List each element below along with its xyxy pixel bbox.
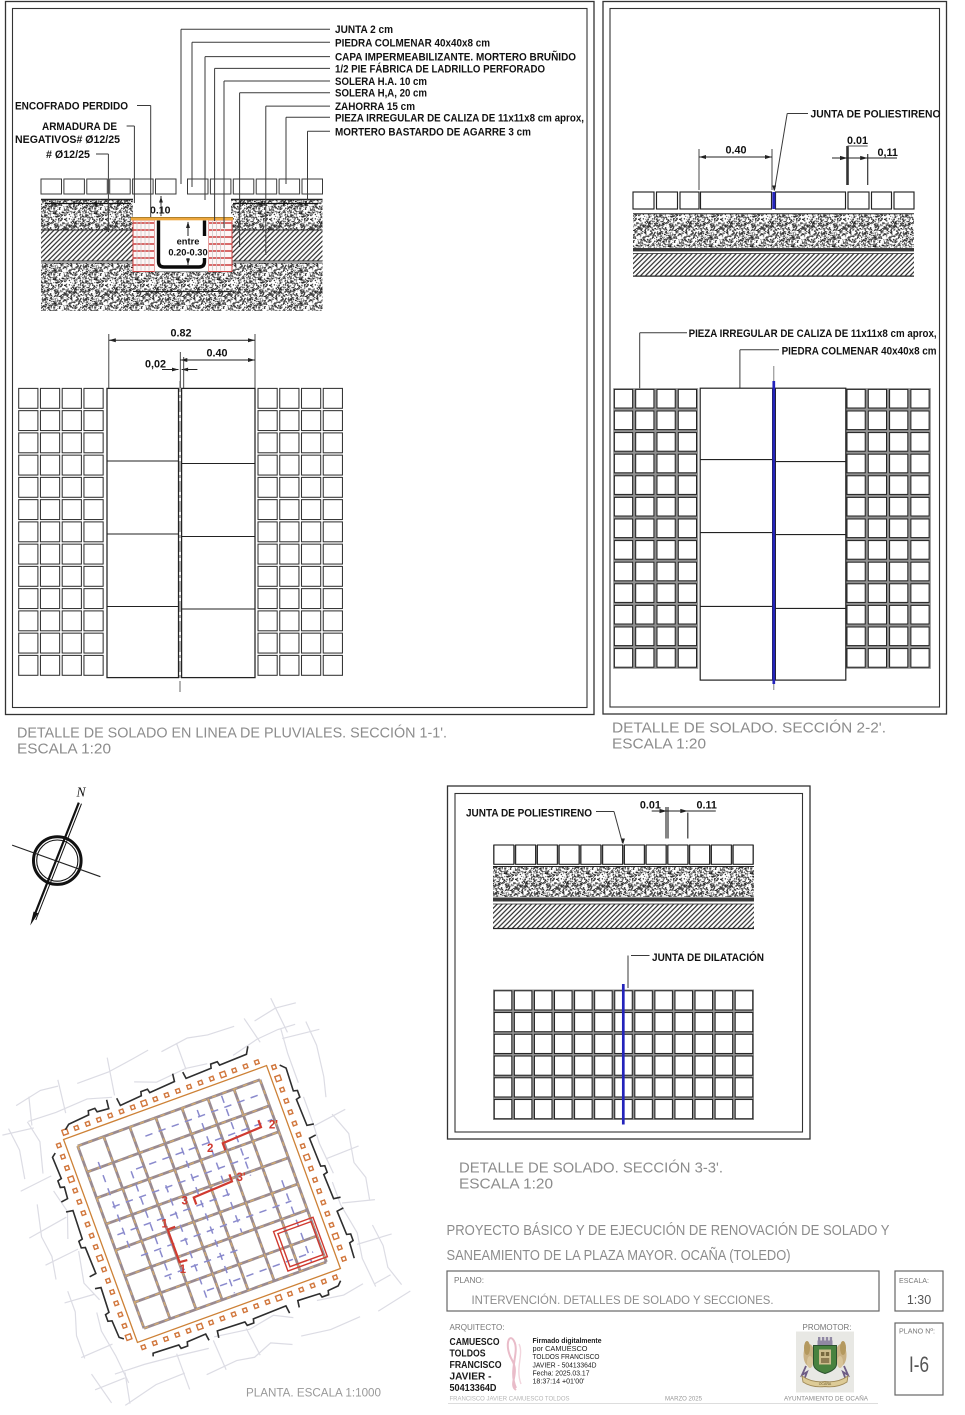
svg-text:PLANTA. ESCALA 1:1000: PLANTA. ESCALA 1:1000 xyxy=(246,1386,381,1400)
svg-text:OCAÑA: OCAÑA xyxy=(819,1381,832,1386)
svg-text:CAPA IMPERMEABILIZANTE. MORTER: CAPA IMPERMEABILIZANTE. MORTERO BRUÑIDO xyxy=(335,51,576,64)
svg-text:ENCOFRADO PERDIDO: ENCOFRADO PERDIDO xyxy=(15,101,128,113)
svg-text:1: 1 xyxy=(161,1219,168,1231)
svg-text:0,11: 0,11 xyxy=(878,147,898,159)
svg-text:ESCALA:: ESCALA: xyxy=(899,1276,929,1285)
svg-text:JUNTA DE POLIESTIRENO: JUNTA DE POLIESTIRENO xyxy=(466,808,592,820)
svg-text:# Ø12/25: # Ø12/25 xyxy=(46,149,90,161)
svg-text:0.01: 0.01 xyxy=(640,800,661,812)
svg-text:entre: entre xyxy=(177,237,200,247)
svg-text:JUNTA DE DILATACIÓN: JUNTA DE DILATACIÓN xyxy=(652,951,764,964)
svg-text:JUNTA DE POLIESTIRENO: JUNTA DE POLIESTIRENO xyxy=(811,109,941,121)
svg-text:SANEAMIENTO DE LA PLAZA MAYOR.: SANEAMIENTO DE LA PLAZA MAYOR. OCAÑA (TO… xyxy=(447,1247,791,1264)
svg-text:DETALLE DE SOLADO. SECCIÓN 2-2: DETALLE DE SOLADO. SECCIÓN 2-2'. xyxy=(612,720,886,737)
svg-text:50413364D: 50413364D xyxy=(450,1383,497,1394)
svg-text:DETALLE DE SOLADO. SECCIÓN 3-3: DETALLE DE SOLADO. SECCIÓN 3-3'. xyxy=(459,1160,723,1177)
svg-text:2: 2 xyxy=(207,1143,213,1155)
svg-text:PIEZA IRREGULAR DE CALIZA DE 1: PIEZA IRREGULAR DE CALIZA DE 11x11x8 cm … xyxy=(689,328,937,340)
svg-text:FRANCISCO: FRANCISCO xyxy=(450,1360,502,1371)
svg-text:18:37:14 +01'00': 18:37:14 +01'00' xyxy=(533,1377,586,1386)
svg-text:1/2 PIE FÁBRICA DE LADRILLO PE: 1/2 PIE FÁBRICA DE LADRILLO PERFORADO xyxy=(335,62,545,75)
svg-text:0.01: 0.01 xyxy=(847,135,868,147)
svg-text:FRANCISCO JAVIER CAMUESCO TOLD: FRANCISCO JAVIER CAMUESCO TOLDOS xyxy=(450,1396,571,1403)
svg-text:SOLERA H,A, 20 cm: SOLERA H,A, 20 cm xyxy=(335,88,427,100)
svg-text:JAVIER -: JAVIER - xyxy=(450,1372,492,1383)
svg-text:SOLERA H.A. 10 cm: SOLERA H.A. 10 cm xyxy=(335,76,427,88)
svg-text:3: 3 xyxy=(182,1195,188,1207)
svg-text:0.20-0.30: 0.20-0.30 xyxy=(168,248,207,258)
svg-text:PROMOTOR:: PROMOTOR: xyxy=(803,1323,852,1332)
svg-text:INTERVENCIÓN. DETALLES DE SOLA: INTERVENCIÓN. DETALLES DE SOLADO Y SECCI… xyxy=(472,1292,774,1307)
svg-text:ESCALA 1:20: ESCALA 1:20 xyxy=(612,736,706,753)
svg-text:0.10: 0.10 xyxy=(150,205,171,217)
svg-text:ZAHORRA 15 cm: ZAHORRA 15 cm xyxy=(335,101,415,113)
svg-text:0.82: 0.82 xyxy=(170,328,191,340)
svg-text:MORTERO BASTARDO DE AGARRE 3 c: MORTERO BASTARDO DE AGARRE 3 cm xyxy=(335,126,531,138)
svg-text:1:30: 1:30 xyxy=(907,1293,931,1307)
svg-text:0.40: 0.40 xyxy=(206,348,227,360)
svg-text:AYUNTAMIENTO DE OCAÑA: AYUNTAMIENTO DE OCAÑA xyxy=(784,1394,869,1403)
svg-text:1: 1 xyxy=(180,1264,187,1276)
svg-text:PIEDRA COLMENAR 40x40x8 cm: PIEDRA COLMENAR 40x40x8 cm xyxy=(782,346,937,358)
svg-text:MARZO 2025: MARZO 2025 xyxy=(665,1396,702,1403)
svg-text:TOLDOS: TOLDOS xyxy=(450,1349,486,1360)
svg-text:ESCALA 1:20: ESCALA 1:20 xyxy=(459,1176,553,1193)
svg-text:0.40: 0.40 xyxy=(725,145,746,157)
svg-text:ESCALA 1:20: ESCALA 1:20 xyxy=(17,741,111,758)
svg-text:0.11: 0.11 xyxy=(697,800,717,812)
svg-text:NEGATIVOS# Ø12/25: NEGATIVOS# Ø12/25 xyxy=(15,134,120,146)
svg-text:I-6: I-6 xyxy=(909,1352,929,1377)
svg-text:DETALLE DE SOLADO EN LINEA DE: DETALLE DE SOLADO EN LINEA DE PLUVIALES.… xyxy=(17,725,447,742)
svg-text:PLANO:: PLANO: xyxy=(454,1276,484,1285)
svg-text:ARQUITECTO:: ARQUITECTO: xyxy=(450,1323,505,1332)
svg-text:2': 2' xyxy=(269,1120,278,1132)
svg-text:N: N xyxy=(76,785,87,800)
svg-text:0,02: 0,02 xyxy=(145,359,166,371)
svg-text:PIEZA IRREGULAR DE CALIZA DE 1: PIEZA IRREGULAR DE CALIZA DE 11x11x8 cm … xyxy=(335,112,584,124)
svg-text:3': 3' xyxy=(236,1172,245,1184)
svg-text:PIEDRA COLMENAR 40x40x8 cm: PIEDRA COLMENAR 40x40x8 cm xyxy=(335,37,490,49)
svg-text:JUNTA 2 cm: JUNTA 2 cm xyxy=(335,24,393,36)
svg-text:PROYECTO BÁSICO Y DE EJECUCIÓN: PROYECTO BÁSICO Y DE EJECUCIÓN DE RENOVA… xyxy=(447,1222,890,1239)
svg-text:CAMUESCO: CAMUESCO xyxy=(450,1337,500,1348)
svg-text:ARMADURA DE: ARMADURA DE xyxy=(42,121,117,133)
svg-text:PLANO Nº:: PLANO Nº: xyxy=(899,1327,935,1336)
